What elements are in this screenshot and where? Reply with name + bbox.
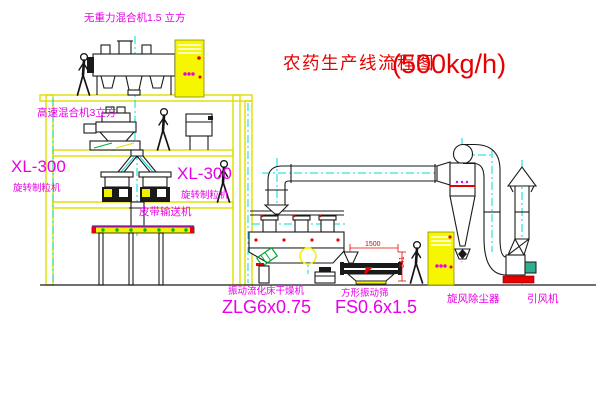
label-dryer-name: 振动流化床干燥机 xyxy=(228,285,305,297)
exhaust-duct xyxy=(265,162,450,214)
label-granulator-left-name: 旋转制粒机 xyxy=(13,182,61,194)
label-dryer-model: ZLG6x0.75 xyxy=(222,297,311,317)
label-sieve-model: FS0.6x1.5 xyxy=(335,297,417,317)
worker-ground xyxy=(411,242,423,283)
label-granulator-right-model: XL-300 xyxy=(177,164,232,183)
floor2-hopper-unit xyxy=(186,114,213,150)
control-cabinet-roof xyxy=(175,40,204,97)
dim-sieve-height: 341 xyxy=(399,256,406,268)
control-cabinet-ground xyxy=(428,232,454,285)
label-granulator-left-model: XL-300 xyxy=(11,157,66,176)
gravity-free-mixer xyxy=(87,41,183,95)
granulator-right xyxy=(139,172,171,202)
indicator-dot xyxy=(197,56,201,60)
label-high-speed-mixer: 高速混合机3立方 xyxy=(37,106,116,119)
label-fan: 引风机 xyxy=(527,292,559,305)
cad-flow-diagram: 无重力混合机1.5 立方 农药生产线流程图 (500kg/h) 高速混合机3立方… xyxy=(0,0,600,403)
label-cyclone: 旋风除尘器 xyxy=(447,292,500,305)
fan-motor xyxy=(525,262,536,273)
drawing-canvas: 无重力混合机1.5 立方 农药生产线流程图 (500kg/h) 高速混合机3立方… xyxy=(0,0,600,403)
fluid-bed-dryer xyxy=(249,211,352,283)
label-belt-conveyor: 皮带输送机 xyxy=(139,205,192,218)
diagram-title-capacity: (500kg/h) xyxy=(392,49,506,79)
label-granulator-right-name: 旋转制粒机 xyxy=(181,189,229,201)
label-top-mixer: 无重力混合机1.5 立方 xyxy=(84,11,186,24)
induced-draft-fan xyxy=(503,255,536,283)
granulator-left xyxy=(101,172,133,202)
worker-floor2 xyxy=(158,109,170,150)
belt-conveyor xyxy=(92,226,194,285)
dim-sieve-width: 1500 xyxy=(365,241,381,248)
vibrating-sieve xyxy=(340,244,406,284)
